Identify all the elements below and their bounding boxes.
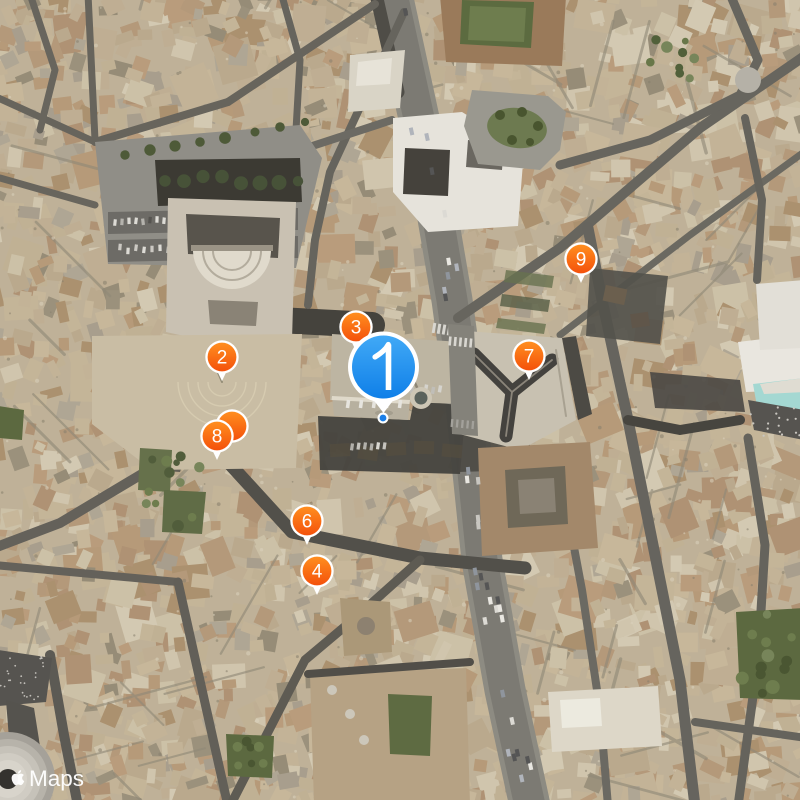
svg-text:7: 7: [524, 347, 535, 368]
svg-text:8: 8: [212, 427, 223, 448]
svg-text:Maps: Maps: [29, 766, 84, 791]
svg-text:4: 4: [312, 562, 323, 583]
svg-text:9: 9: [576, 250, 587, 271]
svg-text:2: 2: [217, 348, 228, 369]
svg-text:6: 6: [302, 512, 313, 533]
svg-text:3: 3: [351, 318, 362, 339]
